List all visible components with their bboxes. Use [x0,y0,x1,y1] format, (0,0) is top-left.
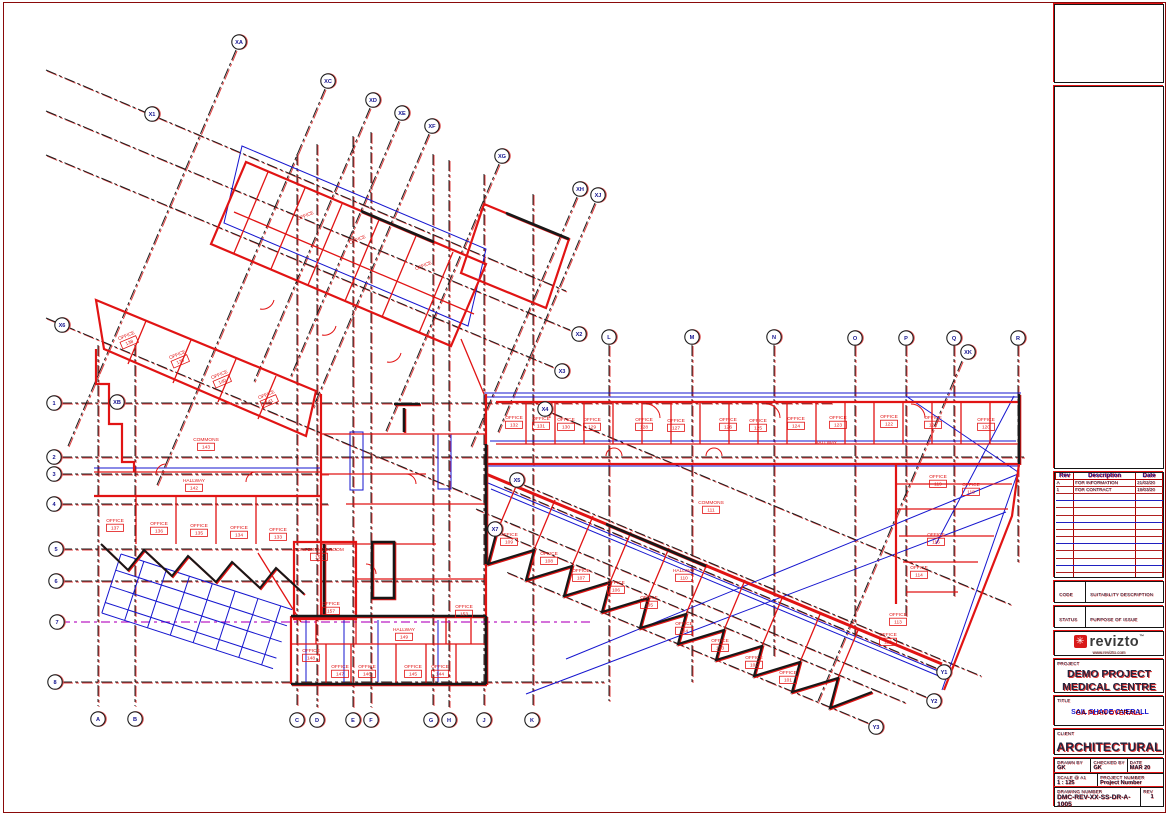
svg-text:OFFICE: OFFICE [500,532,518,538]
svg-text:OFFICE: OFFICE [331,664,349,670]
svg-text:132: 132 [510,423,518,429]
client-value: ARCHITECTURAL [1055,740,1163,754]
title-block-empty-box-2 [1054,86,1164,469]
title-block-empty-box-1 [1054,4,1164,83]
grid-bubble-O: O [848,331,862,345]
status-value: PURPOSE OF ISSUE [1088,616,1139,622]
svg-text:OFFICE: OFFICE [540,551,558,557]
svg-text:130: 130 [562,425,570,431]
svg-text:X7: X7 [492,527,499,533]
revision-row [1056,537,1163,544]
room-label-140: OFFICE140 [210,369,232,388]
title-block: Rev Description Date AFOR INFORMATION21/… [1054,4,1164,810]
grid-bubble-X6: X6 [55,318,69,332]
room-label-108: OFFICE108 [540,551,558,565]
svg-text:OFFICE: OFFICE [117,330,136,342]
room-label-143: COMMONS143 [193,437,219,451]
svg-text:Y3: Y3 [873,725,880,731]
room-label-131: OFFICE131 [532,416,550,430]
status-box: STATUS PURPOSE OF ISSUE [1054,606,1164,628]
svg-text:X3: X3 [559,369,566,375]
grid-bubble-X2: X2 [572,327,586,341]
svg-text:2: 2 [52,455,55,461]
svg-text:OFFICE: OFFICE [749,418,767,424]
grid-bubble-XE: XE [395,106,409,120]
checked-by-value: GK [1091,765,1126,772]
svg-text:XJ: XJ [595,193,602,199]
grid-bubble-4: 4 [47,497,61,511]
drawing-number-value: DMC-REV-XX-SS-DR-A-1005 [1055,794,1140,809]
svg-text:OFFICE: OFFICE [787,416,805,422]
svg-text:X1: X1 [149,112,156,118]
room-label-149: HALLWAY149 [393,627,416,641]
sail-shade-lattice [102,554,292,669]
grid-bubble-XJ: XJ [591,188,605,202]
svg-text:126: 126 [724,425,732,431]
date-value: MAR 20 [1128,765,1163,772]
svg-text:OFFICE: OFFICE [404,664,422,670]
grid-bubble-X3: X3 [555,364,569,378]
grid-bubble-D: D [310,713,324,727]
svg-text:125: 125 [754,426,762,432]
svg-text:OFFICE: OFFICE [431,664,449,670]
svg-text:OFFICE: OFFICE [719,417,737,423]
room-label-111: COMMONS111 [698,500,724,514]
svg-text:1: 1 [52,401,55,407]
svg-text:110: 110 [680,576,688,582]
revision-row [1056,544,1163,551]
svg-text:103: 103 [716,646,724,652]
svg-text:113: 113 [894,620,902,626]
room-label-137: OFFICE137 [106,518,124,532]
svg-text:120: 120 [982,425,990,431]
drawn-checked-date-row: DRAWN BYGK CHECKED BYGK DATEMAR 20 [1054,758,1164,773]
room-label-147: OFFICE147 [331,664,349,678]
svg-text:G: G [429,718,433,724]
svg-text:XC: XC [324,79,332,85]
room-label-107: OFFICE107 [572,568,590,582]
grid-bubble-6: 6 [49,574,63,588]
room-label-122: OFFICE122 [880,414,898,428]
svg-text:6: 6 [54,579,57,585]
room-label-124: OFFICE124 [787,416,805,430]
svg-text:OFFICE: OFFICE [929,474,947,480]
svg-text:128: 128 [640,425,648,431]
svg-text:COMMONS: COMMONS [698,500,724,506]
grid-bubble-XF: XF [425,119,439,133]
svg-text:102: 102 [750,663,758,669]
grid-bubble-N: N [767,330,781,344]
svg-text:XD: XD [369,98,377,104]
svg-text:F: F [369,718,373,724]
revision-row [1056,501,1163,508]
project-number-value: Project Number [1098,780,1163,787]
svg-text:OFFICE: OFFICE [190,523,208,529]
svg-text:OFFICE: OFFICE [711,638,729,644]
svg-text:104: 104 [680,629,688,635]
svg-text:OFFICE: OFFICE [532,416,550,422]
room-label-152: CONFERENCE ROOM152 [294,547,344,561]
svg-text:OFFICE: OFFICE [779,670,797,676]
svg-text:L: L [607,335,611,341]
room-label-123: OFFICE123 [829,415,847,429]
svg-text:X4: X4 [542,407,550,413]
svg-text:OFFICE: OFFICE [879,632,897,638]
svg-text:XG: XG [498,154,506,160]
room-label-129: OFFICE129 [583,417,601,431]
svg-text:147: 147 [336,672,344,678]
room-label-105: OFFICE105 [640,595,658,609]
grid-bubble-E: E [346,713,360,727]
revision-table: Rev Description Date AFOR INFORMATION21/… [1055,473,1163,578]
svg-text:157: 157 [327,609,335,615]
revision-row [1056,558,1163,565]
grid-bubble-XH: XH [573,182,587,196]
svg-text:OFFICE: OFFICE [505,415,523,421]
scale-value: 1 : 125 [1055,780,1097,787]
drawn-by-value: GK [1055,765,1090,772]
grid-bubble-X5: X5 [510,473,524,487]
grid-bubble-XD: XD [366,93,380,107]
svg-text:111: 111 [707,508,715,514]
svg-text:OFFICE: OFFICE [635,417,653,423]
room-label-119: OFFICE119 [929,474,947,488]
svg-text:XE: XE [398,111,406,117]
svg-text:Q: Q [952,336,957,342]
svg-text:OFFICE: OFFICE [583,417,601,423]
svg-text:106: 106 [612,588,620,594]
room-label-145: OFFICE145 [404,664,422,678]
grid-bubble-G: G [424,713,438,727]
svg-text:OFFICE: OFFICE [302,648,320,654]
svg-text:118: 118 [967,490,975,496]
svg-text:XH: XH [576,187,584,193]
svg-text:121: 121 [929,423,937,429]
project-label: PROJECT [1055,660,1163,666]
svg-text:H: H [447,718,451,724]
scale-projectnumber-row: SCALE @ A11 : 125 PROJECT NUMBERProject … [1054,773,1164,787]
room-label-126: OFFICE126 [719,417,737,431]
svg-text:135: 135 [195,531,203,537]
svg-text:149: 149 [400,635,408,641]
project-box: PROJECT DEMO PROJECT MEDICAL CENTRE [1054,659,1164,693]
svg-text:112: 112 [884,640,892,646]
revision-row [1056,508,1163,515]
grid-bubble-B: B [128,712,142,726]
svg-text:OFFICE: OFFICE [880,414,898,420]
svg-text:OFFICE: OFFICE [977,417,995,423]
grid-bubble-A: A [91,712,105,726]
svg-text:146: 146 [363,672,371,678]
svg-text:124: 124 [792,424,800,430]
svg-text:OFFICE: OFFICE [927,532,945,538]
room-label-104: OFFICE104 [675,621,693,635]
svg-text:HALLWAY: HALLWAY [673,568,696,574]
rev-value: 1 [1141,794,1163,801]
svg-text:N: N [772,335,776,341]
svg-text:142: 142 [190,486,198,492]
svg-text:127: 127 [672,426,680,432]
room-label-121: OFFICE121 [924,415,942,429]
svg-text:XF: XF [428,124,436,130]
revision-row [1056,529,1163,536]
svg-text:OFFICE: OFFICE [358,664,376,670]
svg-text:Y1: Y1 [941,670,948,676]
room-label-110: HALLWAY110 [673,568,696,582]
grid-bubble-F: F [364,713,378,727]
svg-text:123: 123 [834,423,842,429]
svg-text:137: 137 [111,526,119,532]
room-label-130: OFFICE130 [557,417,575,431]
svg-text:143: 143 [202,445,210,451]
revision-row: AFOR INFORMATION21/02/20 [1056,479,1163,486]
grid-bubble-XK: XK [961,345,975,359]
svg-text:108: 108 [545,559,553,565]
svg-text:OFFICE: OFFICE [962,482,980,488]
svg-text:OFFICE: OFFICE [414,260,433,272]
grid-bubble-XB: XB [110,395,124,409]
room-label-113: OFFICE113 [889,612,907,626]
svg-text:P: P [904,336,908,342]
svg-text:XK: XK [964,350,972,356]
grid-bubble-Y2: Y2 [927,694,941,708]
revision-row: 1FOR CONTRACT19/03/20 [1056,486,1163,493]
room-label-128: OFFICE128 [635,417,653,431]
svg-text:3: 3 [52,472,55,478]
grid-bubble-1: 1 [47,396,61,410]
room-label-109: OFFICE109 [500,532,518,546]
svg-text:OFFICE: OFFICE [106,518,124,524]
floor-plan: OFFICEOFFICEOFFICEOFFICE138OFFICE139OFFI… [6,4,1052,812]
drawing-title-blue: SAIL SHADE OVERALL [1057,709,1163,716]
svg-text:131: 131 [537,424,545,430]
client-box: CLIENT ARCHITECTURAL [1054,729,1164,756]
revision-row [1056,522,1163,529]
svg-text:148: 148 [307,656,315,662]
svg-text:5: 5 [54,547,57,553]
revision-row [1056,515,1163,522]
svg-text:OFFICE: OFFICE [829,415,847,421]
svg-text:X5: X5 [514,478,521,484]
revision-row [1056,565,1163,572]
grid-bubble-R: R [1011,331,1025,345]
revision-row [1056,551,1163,558]
svg-text:X2: X2 [576,332,583,338]
svg-text:OFFICE: OFFICE [168,349,187,361]
svg-text:XB: XB [113,400,121,406]
grid-bubble-M: M [685,330,699,344]
project-name-line1: DEMO PROJECT [1055,668,1163,681]
code-value: SUITABILITY DESCRIPTION [1088,591,1155,597]
svg-text:OFFICE: OFFICE [924,415,942,421]
svg-text:B: B [133,717,137,723]
svg-text:XA: XA [235,40,243,46]
svg-text:129: 129 [588,425,596,431]
room-label-hallway: HALLWAY [815,440,838,446]
room-label-127: OFFICE127 [667,418,685,432]
grid-bubble-5: 5 [49,542,63,556]
svg-text:114: 114 [915,573,923,579]
grid-bubble-XG: XG [495,149,509,163]
grid-bubble-3: 3 [47,467,61,481]
svg-text:COMMONS: COMMONS [193,437,219,443]
drawing-number-row: DRAWING NUMBERDMC-REV-XX-SS-DR-A-1005 RE… [1054,787,1164,807]
grid-bubbles: XAXCXDXEXFXGXHXJX1X2X3X4X5X7X6XBXK123456… [47,35,1025,734]
room-label-132: OFFICE132 [505,415,523,429]
revision-row [1056,573,1163,578]
grid-bubble-8: 8 [48,675,62,689]
room-label-141: OFFICE141 [257,389,279,408]
room-label-120: OFFICE120 [977,417,995,431]
grid-bubble-X4: X4 [538,402,552,416]
code-label: CODE [1057,591,1075,597]
room-label-144: OFFICE144 [431,664,449,678]
title-box: TITLE GA PLAN OVERALL SAIL SHADE OVERALL [1054,696,1164,726]
svg-text:101: 101 [784,678,792,684]
revizto-url: www.revizto.com [1055,650,1163,655]
svg-text:HALLWAY: HALLWAY [393,627,416,633]
room-label-134: OFFICE134 [230,525,248,539]
title-label: TITLE [1055,697,1163,703]
svg-text:109: 109 [505,540,513,546]
grid-bubble-H: H [442,713,456,727]
revision-row [1056,493,1163,500]
grid-bubble-Y3: Y3 [869,720,883,734]
svg-text:144: 144 [436,672,444,678]
svg-text:7: 7 [55,620,58,626]
svg-text:105: 105 [645,603,653,609]
grid-bubble-2: 2 [47,450,61,464]
svg-text:OFFICE: OFFICE [557,417,575,423]
svg-text:OFFICE: OFFICE [230,525,248,531]
grid-bubble-7: 7 [50,615,64,629]
svg-text:R: R [1016,336,1020,342]
svg-text:C: C [295,718,299,724]
svg-text:HALLWAY: HALLWAY [815,440,838,446]
svg-text:E: E [351,718,355,724]
svg-text:107: 107 [577,576,585,582]
grid-bubble-L: L [602,330,616,344]
room-label-office: OFFICE [414,260,433,272]
revizto-logo-icon [1074,635,1087,648]
svg-text:OFFICE: OFFICE [572,568,590,574]
svg-text:OFFICE: OFFICE [640,595,658,601]
svg-text:OFFICE: OFFICE [269,527,287,533]
svg-text:CONFERENCE ROOM: CONFERENCE ROOM [294,547,344,553]
svg-text:M: M [690,335,695,341]
grid-bubble-Q: Q [947,331,961,345]
svg-text:J: J [482,718,485,724]
svg-text:152: 152 [315,555,323,561]
room-label-142: HALLWAY142 [183,478,206,492]
grid-bubble-XA: XA [232,35,246,49]
code-box: CODE SUITABILITY DESCRIPTION [1054,581,1164,603]
svg-text:119: 119 [934,482,942,488]
grid-bubble-XC: XC [321,74,335,88]
room-label-office: OFFICE [296,210,315,222]
grid-bubble-K: K [525,713,539,727]
grid-bubble-C: C [290,713,304,727]
revizto-logo-text: revizto™ [1090,634,1145,650]
svg-text:A: A [96,717,100,723]
grid-bubble-J: J [477,713,491,727]
svg-text:HALLWAY: HALLWAY [183,478,206,484]
svg-text:136: 136 [155,529,163,535]
svg-text:OFFICE: OFFICE [745,655,763,661]
room-label-133: OFFICE133 [269,527,287,541]
svg-text:OFFICE: OFFICE [296,210,315,222]
svg-text:D: D [315,718,319,724]
room-label-102: OFFICE102 [745,655,763,669]
svg-text:153: 153 [460,612,468,618]
logo-box: revizto™ www.revizto.com [1054,631,1164,657]
svg-text:Y2: Y2 [931,699,938,705]
grid-bubble-Y1: Y1 [937,665,951,679]
room-label-146: OFFICE146 [358,664,376,678]
svg-text:OFFICE: OFFICE [910,565,928,571]
svg-text:OFFICE: OFFICE [150,521,168,527]
grid-bubble-P: P [899,331,913,345]
svg-text:O: O [853,336,858,342]
grid-bubble-X7: X7 [488,522,502,536]
grid-bubble-X1: X1 [145,107,159,121]
svg-text:X6: X6 [59,323,66,329]
svg-text:K: K [530,718,534,724]
revision-table-box: Rev Description Date AFOR INFORMATION21/… [1054,472,1164,578]
room-label-136: OFFICE136 [150,521,168,535]
room-label-135: OFFICE135 [190,523,208,537]
svg-text:OFFICE: OFFICE [322,601,340,607]
svg-text:145: 145 [409,672,417,678]
project-name-line2: MEDICAL CENTRE [1055,681,1163,694]
svg-text:116: 116 [932,540,940,546]
svg-text:122: 122 [885,422,893,428]
client-label: CLIENT [1055,730,1163,736]
room-label-114: OFFICE114 [910,565,928,579]
svg-text:133: 133 [274,535,282,541]
svg-text:OFFICE: OFFICE [607,580,625,586]
svg-text:134: 134 [235,533,243,539]
drawing-sheet: OFFICEOFFICEOFFICEOFFICE138OFFICE139OFFI… [0,0,1168,815]
svg-text:OFFICE: OFFICE [667,418,685,424]
svg-text:OFFICE: OFFICE [889,612,907,618]
svg-text:OFFICE: OFFICE [455,604,473,610]
status-label: STATUS [1057,616,1079,622]
svg-text:OFFICE: OFFICE [210,369,229,381]
svg-text:OFFICE: OFFICE [675,621,693,627]
room-labels: OFFICEOFFICEOFFICEOFFICE138OFFICE139OFFI… [106,210,995,684]
svg-text:8: 8 [53,680,56,686]
